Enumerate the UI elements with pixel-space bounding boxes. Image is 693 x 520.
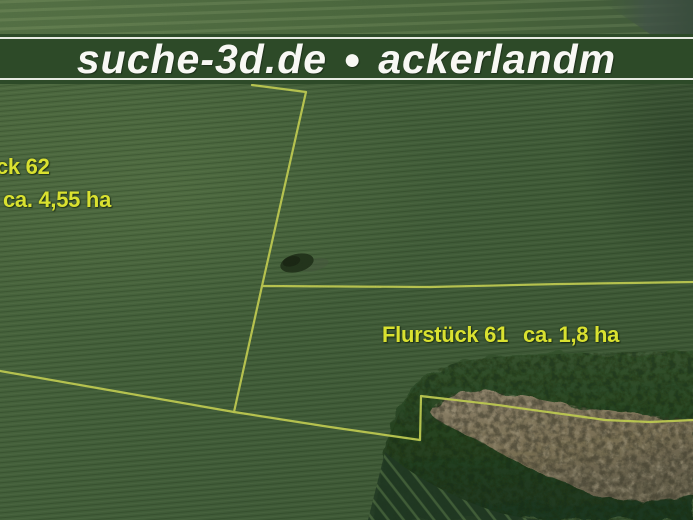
land-listing-image: ck 62 ca. 4,55 ha Flurstück 61ca. 1,8 ha… xyxy=(0,0,693,520)
watermark-banner: suche-3d.de ● ackerlandm xyxy=(0,34,693,84)
banner-site-left: suche-3d.de xyxy=(77,39,327,80)
parcel-61-name: Flurstück 61 xyxy=(382,322,508,347)
banner-text: suche-3d.de ● ackerlandm xyxy=(77,39,616,80)
parcel-62-name: ck 62 xyxy=(0,150,111,183)
parcel-62-area: ca. 4,55 ha xyxy=(3,183,111,216)
parcel-61-area: ca. 1,8 ha xyxy=(523,322,619,347)
parcel-61-label: Flurstück 61ca. 1,8 ha xyxy=(382,322,619,348)
banner-rule-top xyxy=(0,37,693,39)
banner-rule-bottom xyxy=(0,78,693,80)
bullet-separator-icon: ● xyxy=(343,45,362,75)
banner-site-right: ackerlandm xyxy=(378,39,616,80)
parcel-62-label: ck 62 ca. 4,55 ha xyxy=(0,150,111,216)
